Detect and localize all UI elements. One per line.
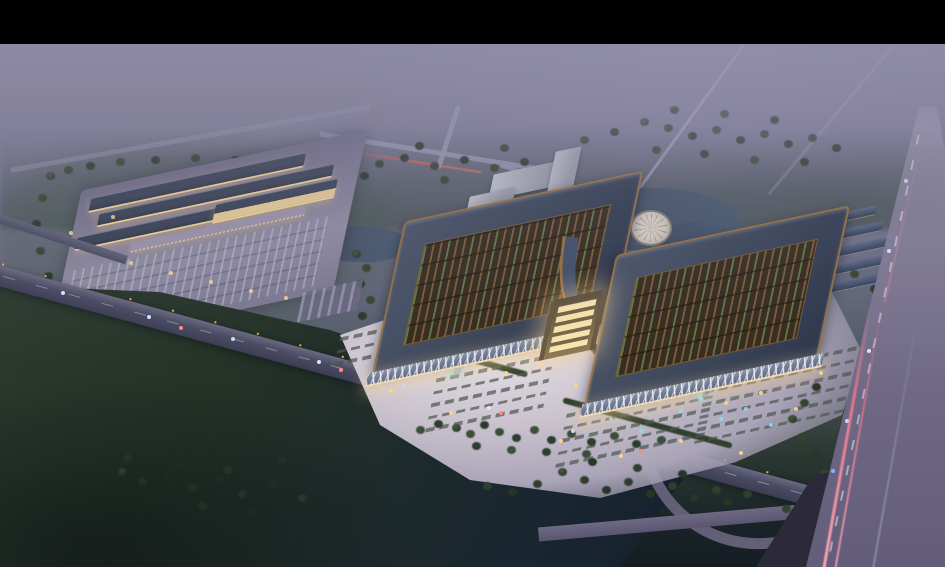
tree-cluster: [452, 424, 461, 432]
tree-cluster: [640, 118, 649, 126]
tree-cluster: [118, 468, 127, 476]
gate-glow-windows: [549, 299, 597, 353]
scene: [0, 0, 945, 567]
lattice-courtyard: [615, 239, 818, 378]
tree-cluster: [352, 250, 361, 258]
circular-plaza: [630, 210, 672, 246]
tree-cluster: [788, 415, 797, 423]
letterbox-bar-top: [0, 0, 945, 44]
tree-cluster: [46, 172, 55, 180]
rendering-viewport: [0, 0, 945, 567]
tree-cluster: [558, 468, 567, 476]
